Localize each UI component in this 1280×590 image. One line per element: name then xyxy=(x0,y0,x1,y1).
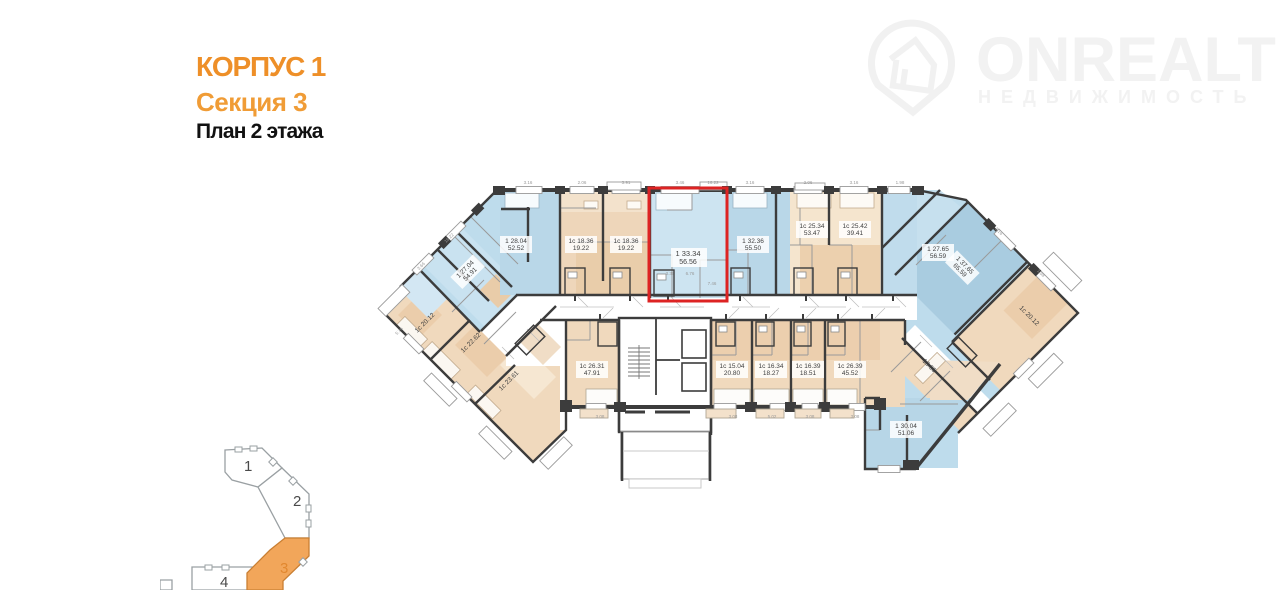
svg-text:2: 2 xyxy=(293,493,301,510)
svg-text:3.16: 3.16 xyxy=(524,180,533,185)
svg-text:56.56: 56.56 xyxy=(679,259,697,266)
svg-text:47.91: 47.91 xyxy=(584,370,601,377)
svg-text:20.80: 20.80 xyxy=(724,370,741,377)
svg-text:55.50: 55.50 xyxy=(745,245,762,252)
svg-text:3.08: 3.08 xyxy=(851,414,860,419)
svg-text:39.41: 39.41 xyxy=(847,230,864,237)
svg-text:1с 15.04: 1с 15.04 xyxy=(720,363,745,370)
svg-text:1 32.36: 1 32.36 xyxy=(742,238,764,245)
svg-text:1: 1 xyxy=(244,458,252,475)
svg-text:3.91: 3.91 xyxy=(622,180,631,185)
svg-text:2.06: 2.06 xyxy=(578,180,587,185)
svg-text:1 27.65: 1 27.65 xyxy=(927,246,949,253)
svg-text:16.22: 16.22 xyxy=(707,180,719,185)
svg-text:56.59: 56.59 xyxy=(930,253,947,260)
svg-text:1с 16.34: 1с 16.34 xyxy=(759,363,784,370)
svg-text:3: 3 xyxy=(280,560,288,577)
svg-text:3.08: 3.08 xyxy=(806,414,815,419)
svg-text:51.06: 51.06 xyxy=(898,430,915,437)
svg-text:1с 16.39: 1с 16.39 xyxy=(796,363,821,370)
svg-text:53.47: 53.47 xyxy=(804,230,821,237)
svg-text:52.52: 52.52 xyxy=(508,245,525,252)
svg-text:7.46: 7.46 xyxy=(708,281,717,286)
svg-text:3.16: 3.16 xyxy=(746,180,755,185)
svg-text:1 30.04: 1 30.04 xyxy=(895,423,917,430)
svg-text:1с 25.34: 1с 25.34 xyxy=(800,223,825,230)
svg-text:1с 26.39: 1с 26.39 xyxy=(838,363,863,370)
svg-text:1.98: 1.98 xyxy=(896,180,905,185)
svg-text:3.08: 3.08 xyxy=(596,414,605,419)
svg-text:5.02: 5.02 xyxy=(768,414,777,419)
svg-text:6.76: 6.76 xyxy=(686,271,695,276)
svg-text:19.22: 19.22 xyxy=(573,245,590,252)
svg-text:1с 18.36: 1с 18.36 xyxy=(569,238,594,245)
svg-text:4: 4 xyxy=(220,574,228,590)
svg-text:НЕДВИЖИМОСТЬ: НЕДВИЖИМОСТЬ xyxy=(978,87,1256,107)
svg-text:1с 25.42: 1с 25.42 xyxy=(843,223,868,230)
svg-text:19.22: 19.22 xyxy=(618,245,635,252)
svg-text:3.16: 3.16 xyxy=(850,180,859,185)
svg-text:1 28.04: 1 28.04 xyxy=(505,238,527,245)
svg-text:1с 18.36: 1с 18.36 xyxy=(614,238,639,245)
svg-text:2.06: 2.06 xyxy=(804,180,813,185)
svg-text:3.46: 3.46 xyxy=(676,180,685,185)
svg-text:1 33.34: 1 33.34 xyxy=(675,249,700,258)
svg-text:18.51: 18.51 xyxy=(800,370,817,377)
svg-text:3.08: 3.08 xyxy=(729,414,738,419)
svg-text:1с 26.31: 1с 26.31 xyxy=(580,363,605,370)
svg-text:18.27: 18.27 xyxy=(763,370,780,377)
svg-text:ONREALT: ONREALT xyxy=(976,25,1276,95)
svg-text:45.52: 45.52 xyxy=(842,370,859,377)
